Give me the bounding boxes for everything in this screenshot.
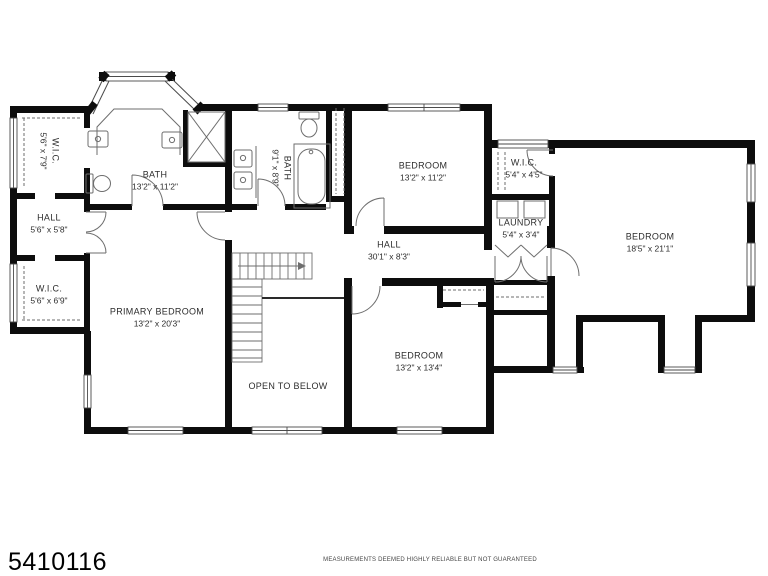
room-label-hall-left: HALL5'6" x 5'8" [30,213,67,236]
hall-closet-door-b [521,256,547,282]
bathtub [294,144,330,208]
room-label-hall-bath: BATH9'1" x 8'9" [270,149,293,186]
room-label-wic-left-top: W.I.C.5'6" x 7'9" [38,132,61,169]
room-label-primary-bedroom: PRIMARY BEDROOM13'2" x 20'3" [110,307,204,330]
laundry-bifold-doors [495,245,547,257]
room-label-primary-bath: BATH13'2" x 11'2" [132,170,178,193]
room-label-hall-center: HALL30'1" x 8'3" [368,240,410,263]
bedroom-bottom-door [352,286,380,314]
room-label-bedroom-top: BEDROOM13'2" x 11'2" [399,161,448,184]
disclaimer-text: MEASUREMENTS DEEMED HIGHLY RELIABLE BUT … [323,557,537,563]
staircase [232,253,344,362]
sink [234,172,252,189]
sink [162,132,182,148]
floor-plan-page: W.I.C.5'6" x 7'9" HALL5'6" x 5'8" W.I.C.… [0,0,768,576]
hall-closet-door-a [495,256,521,282]
room-label-laundry: LAUNDRY5'4" x 3'4" [499,218,544,241]
primary-bedroom-door [197,212,225,240]
room-label-bedroom-right: BEDROOM18'5" x 21'1" [626,232,675,255]
toilet [299,112,319,137]
bedroom-right-door [551,248,579,276]
washer-dryer [497,201,545,218]
sink [234,150,252,167]
hall-left-double-door-b [86,233,106,253]
bedroom-top-door [356,198,384,226]
walls [10,104,755,434]
room-label-wic-left-bottom: W.I.C.5'6" x 6'9" [30,284,67,307]
mls-number: 5410116 [8,548,107,576]
sink [88,131,108,147]
hall-left-double-door-a [86,212,106,232]
room-label-open-to-below: OPEN TO BELOW [248,381,327,393]
fixtures [22,108,546,320]
room-label-wic-right: W.I.C.5'4" x 4'5" [505,158,542,181]
room-label-bedroom-bottom: BEDROOM13'2" x 13'4" [395,351,444,374]
shower [188,112,225,162]
floor-plan-drawing [0,0,768,576]
